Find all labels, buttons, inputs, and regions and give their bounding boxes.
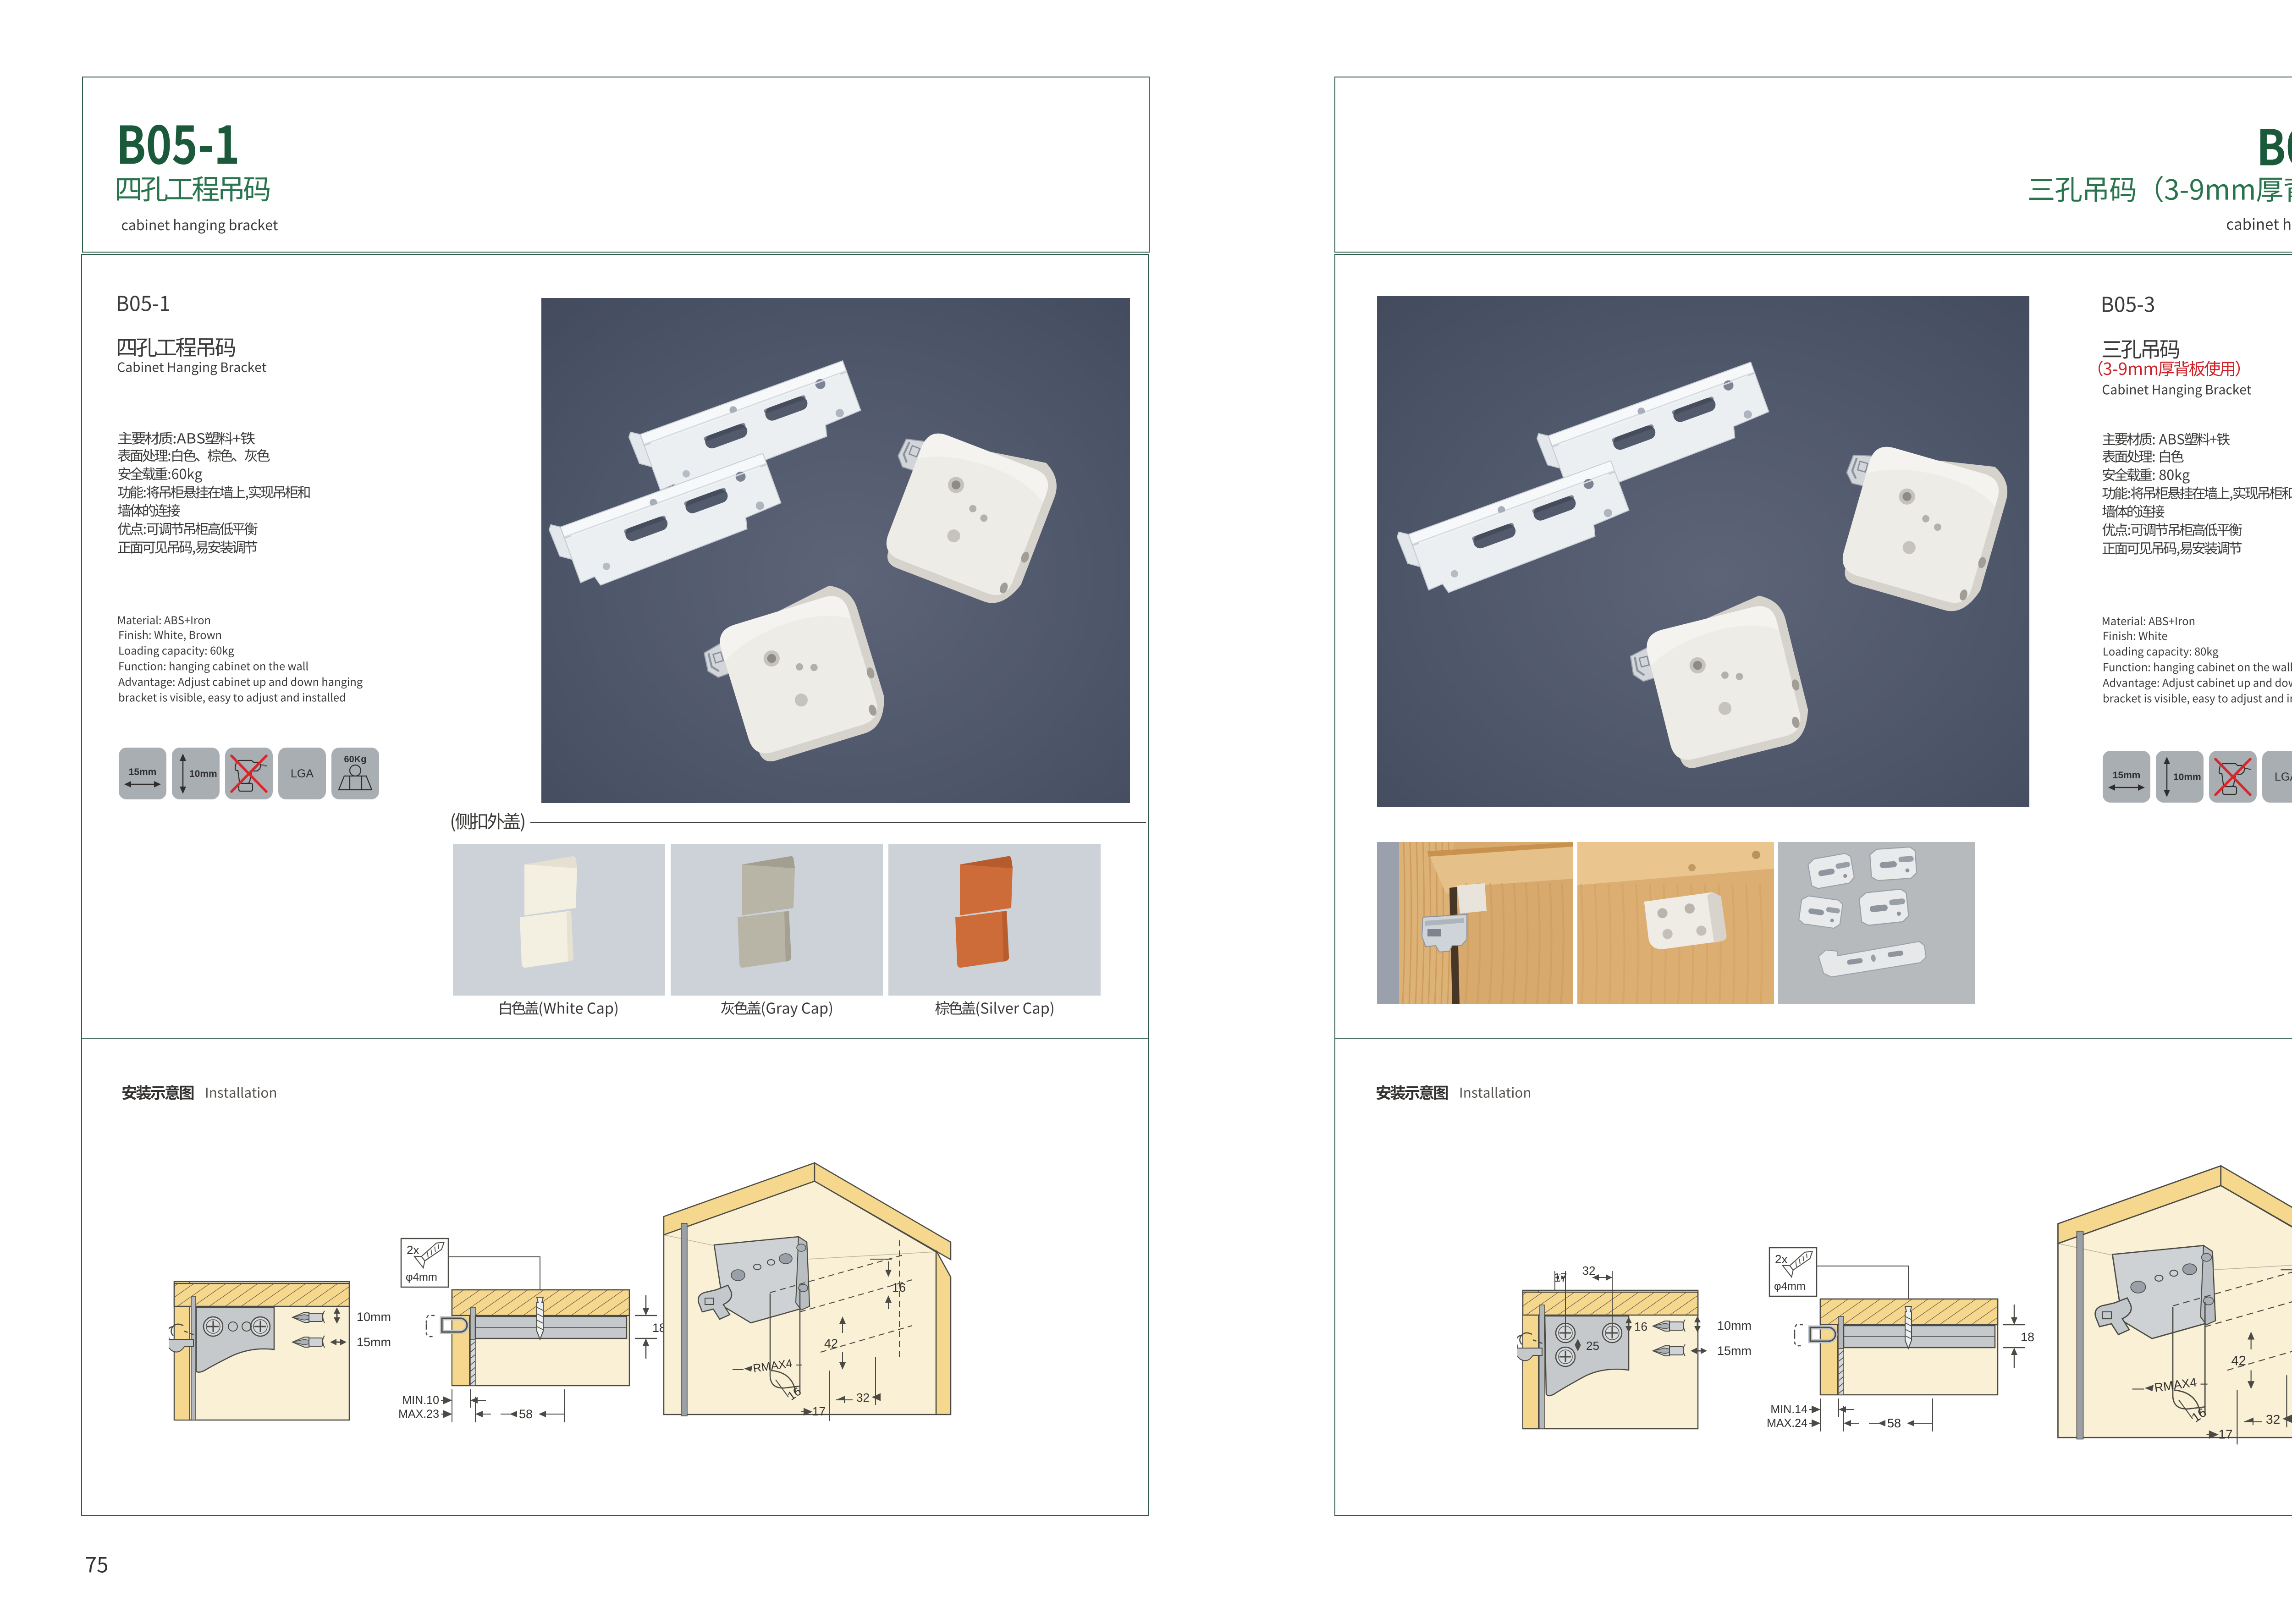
svg-text:42: 42 — [824, 1337, 838, 1350]
svg-text:17: 17 — [812, 1404, 826, 1418]
svg-text:2x: 2x — [1775, 1252, 1787, 1266]
svg-text:60Kg: 60Kg — [344, 754, 367, 765]
svg-text:17: 17 — [1554, 1271, 1567, 1284]
svg-text:58: 58 — [519, 1407, 533, 1421]
svg-text:17: 17 — [2218, 1427, 2232, 1441]
svg-text:15mm: 15mm — [129, 767, 157, 777]
svg-text:2x: 2x — [407, 1243, 419, 1257]
svg-text:MAX.23: MAX.23 — [398, 1408, 439, 1420]
svg-text:32: 32 — [2266, 1412, 2280, 1426]
svg-text:10mm: 10mm — [189, 769, 217, 779]
svg-text:25: 25 — [1586, 1339, 1599, 1353]
svg-text:18: 18 — [2021, 1330, 2034, 1344]
svg-text:42: 42 — [2231, 1354, 2246, 1369]
svg-text:16: 16 — [892, 1281, 906, 1294]
svg-text:32: 32 — [1582, 1264, 1596, 1277]
svg-text:MIN.10: MIN.10 — [402, 1394, 439, 1407]
svg-text:16: 16 — [1634, 1320, 1647, 1333]
svg-text:10mm: 10mm — [2173, 772, 2201, 782]
svg-text:LGA: LGA — [291, 767, 314, 780]
svg-text:LGA: LGA — [2275, 771, 2292, 783]
svg-text:φ4mm: φ4mm — [1774, 1280, 1806, 1293]
svg-text:15mm: 15mm — [2113, 770, 2141, 781]
svg-text:58: 58 — [1887, 1416, 1901, 1430]
svg-text:φ4mm: φ4mm — [406, 1271, 437, 1283]
svg-text:32: 32 — [856, 1391, 870, 1404]
svg-text:MAX.24: MAX.24 — [1767, 1417, 1807, 1430]
svg-text:MIN.14: MIN.14 — [1770, 1403, 1807, 1416]
